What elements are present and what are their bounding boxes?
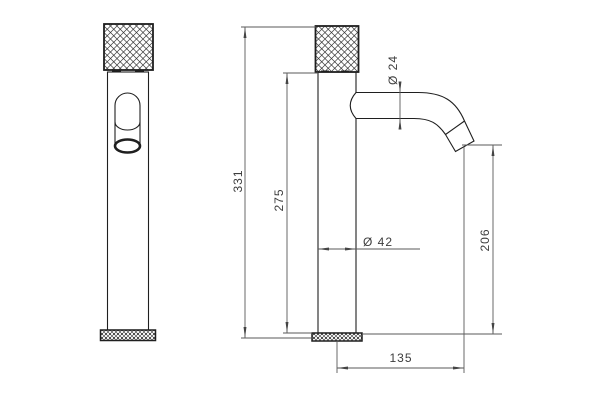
faucet-technical-drawing <box>0 0 600 400</box>
dim-label-spout-reach: 135 <box>389 352 412 364</box>
technical-drawing-canvas: 331 275 Ø 24 Ø 42 206 135 <box>0 0 600 400</box>
front-body <box>108 72 149 330</box>
dim-total-height-lines <box>241 27 316 338</box>
dim-label-outlet-height: 206 <box>479 228 491 251</box>
front-base-ring <box>101 330 156 341</box>
side-spout <box>350 93 474 152</box>
dim-label-total-height: 331 <box>232 169 244 192</box>
side-body <box>318 72 356 333</box>
dim-label-body-diameter: Ø 42 <box>363 236 393 248</box>
dim-label-body-height: 275 <box>273 188 285 211</box>
dim-body-height-lines <box>283 73 318 333</box>
front-view <box>101 24 156 341</box>
front-spout-outlet <box>115 140 140 153</box>
side-knob <box>316 26 359 72</box>
side-base-ring <box>312 333 362 341</box>
front-knob <box>104 24 153 70</box>
dim-label-spout-diameter: Ø 24 <box>387 55 399 85</box>
